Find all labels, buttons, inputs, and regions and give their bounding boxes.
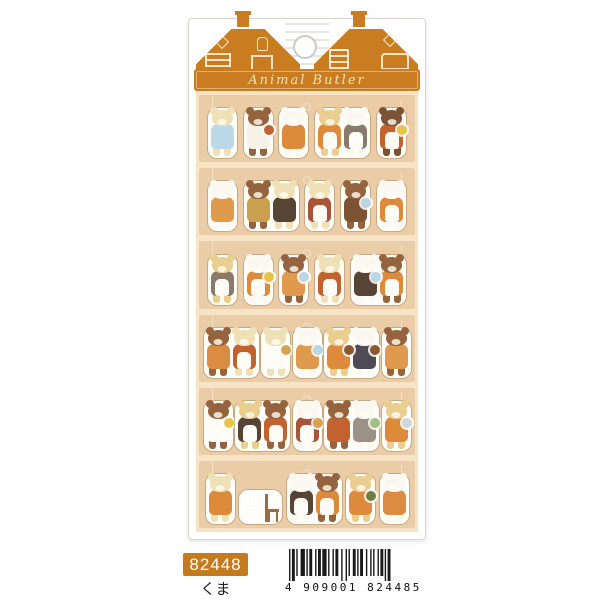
sticker-row [199, 388, 415, 455]
bear-sticker [315, 255, 344, 305]
bear-sticker [279, 108, 308, 158]
bear-icon [348, 476, 373, 522]
bear-sticker [377, 181, 406, 231]
apron [269, 425, 283, 442]
product-title: Animal Butler [248, 73, 366, 88]
bear-sticker [382, 328, 411, 378]
chair-sticker-icon [265, 494, 279, 522]
bear-sticker [235, 401, 290, 451]
bear-icon [343, 183, 368, 229]
barcode: 4 909001 824485 [285, 549, 413, 595]
held-item [402, 418, 412, 428]
bear-icon [210, 183, 235, 229]
bear-icon [289, 476, 314, 522]
bear-sticker [208, 108, 237, 158]
bear-icon [384, 403, 409, 449]
held-item [313, 418, 323, 428]
bear-icon [210, 110, 235, 156]
item-name-label: くま [180, 578, 251, 599]
held-item [361, 198, 371, 208]
held-item [344, 345, 354, 355]
title-banner: Animal Butler [194, 69, 420, 91]
bear-sticker [208, 255, 237, 305]
bear-sticker [244, 255, 273, 305]
sticker-row [199, 95, 415, 162]
apron [323, 279, 337, 296]
bear-sticker [346, 474, 375, 524]
bear-icon [246, 183, 271, 229]
sticker-package-card: Animal Butler [188, 18, 426, 540]
held-item [370, 345, 380, 355]
held-item [313, 345, 323, 355]
bear-sticker [244, 181, 299, 231]
apron [251, 279, 265, 296]
bear-icon [281, 257, 306, 303]
apron [313, 205, 327, 222]
bear-icon [295, 330, 320, 376]
bear-icon [379, 257, 404, 303]
apron [294, 498, 308, 515]
bear-sticker [351, 255, 406, 305]
bear-sticker [287, 474, 342, 524]
attic-drawer-icon [329, 49, 349, 71]
bear-icon [237, 403, 262, 449]
bear-sticker [305, 181, 334, 231]
apron [300, 425, 314, 442]
bear-icon [206, 330, 231, 376]
bear-icon [352, 330, 377, 376]
bear-icon [272, 183, 297, 229]
bear-icon [384, 330, 409, 376]
bear-icon [263, 330, 288, 376]
bear-icon [326, 403, 351, 449]
bear-icon [353, 257, 378, 303]
bear-icon [379, 183, 404, 229]
bear-sticker [382, 401, 411, 451]
bear-sticker [293, 328, 322, 378]
held-item [371, 272, 381, 282]
apron [349, 132, 363, 149]
bear-icon [263, 403, 288, 449]
hang-hole [293, 35, 317, 59]
bear-sticker [239, 490, 282, 524]
bear-sticker [279, 255, 308, 305]
apron [323, 132, 337, 149]
bear-icon [315, 476, 340, 522]
barcode-bars [285, 549, 413, 581]
bear-sticker [324, 328, 379, 378]
bear-icon [317, 110, 342, 156]
bear-icon [281, 110, 306, 156]
attic-bed-icon [381, 53, 409, 70]
bear-icon [307, 183, 332, 229]
apron [385, 279, 399, 296]
held-item [264, 125, 274, 135]
held-item [224, 418, 234, 428]
sticker-row [199, 315, 415, 382]
sticker-row [199, 241, 415, 308]
apron [243, 425, 257, 442]
product-photo: Animal Butler 82448 くま 4 909001 824485 [0, 0, 614, 614]
bear-sticker [206, 474, 235, 524]
bear-icon [246, 257, 271, 303]
bear-icon [352, 403, 377, 449]
held-item [281, 345, 291, 355]
bear-icon [210, 257, 235, 303]
bear-sticker [315, 108, 370, 158]
chimney-right-icon [353, 11, 365, 27]
item-code-badge: 82448 [183, 553, 248, 576]
apron [320, 498, 334, 515]
chimney-left-icon [237, 11, 249, 27]
bear-sticker [204, 401, 233, 451]
bear-icon [343, 110, 368, 156]
bear-icon [295, 403, 320, 449]
barcode-digits: 4 909001 824485 [285, 581, 413, 594]
bear-sticker [324, 401, 379, 451]
held-item [370, 418, 380, 428]
bear-icon [317, 257, 342, 303]
bear-sticker [204, 328, 259, 378]
bear-sticker [208, 181, 237, 231]
bear-sticker [261, 328, 290, 378]
bear-icon [326, 330, 351, 376]
bear-sticker [377, 108, 406, 158]
sticker-row [199, 461, 415, 528]
held-item [264, 272, 274, 282]
bear-sticker [244, 108, 273, 158]
apron [385, 205, 399, 222]
bear-icon [232, 330, 257, 376]
attic-lantern-icon [257, 37, 268, 51]
held-item [366, 491, 376, 501]
sticker-rows [196, 91, 418, 532]
bear-icon [208, 476, 233, 522]
bear-sticker [341, 181, 370, 231]
window-sticker-icon [242, 492, 262, 522]
bear-sticker [293, 401, 322, 451]
held-item [397, 125, 407, 135]
bear-sticker [380, 474, 409, 524]
held-item [299, 272, 309, 282]
attic-ladder-icon [205, 53, 231, 67]
apron [385, 132, 399, 149]
apron [215, 279, 229, 296]
bear-icon [382, 476, 407, 522]
sticker-row [199, 168, 415, 235]
attic-table-icon [251, 55, 273, 69]
bear-icon [206, 403, 231, 449]
apron [237, 352, 251, 369]
bear-icon [379, 110, 404, 156]
bear-icon [246, 110, 271, 156]
